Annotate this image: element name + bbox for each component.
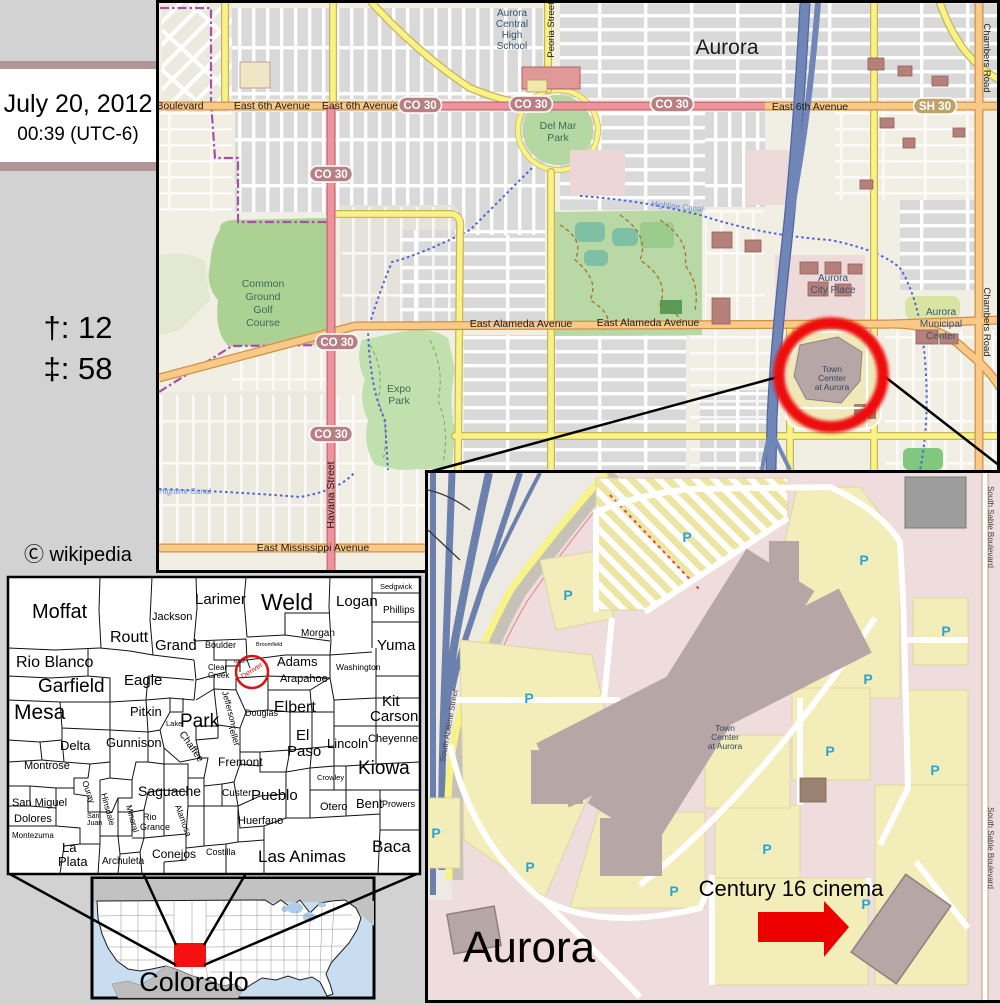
svg-text:CO 30: CO 30 [403,100,436,112]
svg-text:Delta: Delta [60,738,91,753]
svg-text:Montezuma: Montezuma [12,831,54,840]
svg-text:Moffat: Moffat [32,601,88,623]
svg-text:Municipal: Municipal [920,319,962,330]
svg-text:Jackson: Jackson [152,611,192,623]
svg-text:Grand: Grand [155,637,197,654]
svg-text:Costilla: Costilla [206,847,236,857]
svg-text:CO 30: CO 30 [655,99,688,111]
svg-text:CO 30: CO 30 [314,429,347,441]
svg-text:CO 30: CO 30 [320,337,353,349]
svg-text:East 6th Avenue: East 6th Avenue [234,100,310,112]
svg-text:Havana Street: Havana Street [325,461,337,528]
svg-text:P: P [431,825,440,841]
svg-text:P: P [859,552,868,568]
svg-text:El: El [296,727,309,744]
svg-text:at Aurora: at Aurora [815,382,850,392]
svg-text:Dolores: Dolores [14,813,52,825]
svg-text:Chambers Road: Chambers Road [981,287,992,356]
svg-text:Aurora: Aurora [926,307,956,318]
svg-text:Boulevard: Boulevard [159,100,204,112]
svg-text:Huerfano: Huerfano [238,815,283,827]
svg-text:Century 16 cinema: Century 16 cinema [699,876,884,901]
svg-text:P: P [563,587,572,603]
svg-text:Gilpin: Gilpin [234,659,246,664]
svg-text:Custer: Custer [222,788,252,799]
svg-text:P: P [682,529,691,545]
svg-text:East Mississippi Avenue: East Mississippi Avenue [257,542,370,554]
svg-text:East Alameda Avenue: East Alameda Avenue [597,317,700,329]
svg-text:Phillips: Phillips [383,605,415,616]
svg-text:Lincoln: Lincoln [327,736,368,751]
svg-text:Pueblo: Pueblo [251,787,298,804]
svg-text:Larimer: Larimer [195,591,246,608]
svg-text:Aurora: Aurora [497,8,527,19]
svg-text:Conejos: Conejos [152,847,196,861]
svg-text:Washington: Washington [336,662,381,672]
svg-text:P: P [825,743,834,759]
svg-text:Rio Blanco: Rio Blanco [16,654,93,671]
svg-text:Grande: Grande [140,822,170,832]
svg-text:at Aurora: at Aurora [708,741,743,751]
svg-text:Crowley: Crowley [317,773,344,782]
svg-text:Paso: Paso [287,743,321,760]
svg-text:La: La [62,840,77,855]
svg-text:Cheyenne: Cheyenne [368,733,418,745]
svg-text:Morgan: Morgan [301,628,335,639]
svg-text:Expo: Expo [387,383,411,395]
svg-text:Common: Common [242,278,285,290]
svg-text:Broomfield: Broomfield [256,642,282,648]
svg-text:Aurora: Aurora [463,923,596,972]
svg-text:P: P [525,859,534,875]
svg-text:School: School [497,41,528,52]
svg-text:Las Animas: Las Animas [258,847,346,866]
svg-text:Elbert: Elbert [274,699,316,716]
svg-text:P: P [930,762,939,778]
svg-text:Pitkin: Pitkin [130,704,162,719]
svg-text:Plata: Plata [58,854,88,869]
svg-text:City Place: City Place [810,285,855,296]
svg-text:Routt: Routt [110,629,149,646]
svg-text:CO 30: CO 30 [314,169,347,181]
svg-text:CO 30: CO 30 [514,99,547,111]
svg-text:Yuma: Yuma [377,637,416,654]
svg-text:Sedgwick: Sedgwick [380,582,412,591]
svg-text:Course: Course [246,317,280,329]
svg-text:Aurora: Aurora [695,36,758,59]
svg-text:Kiowa: Kiowa [358,758,410,779]
svg-text:East 6th Avenue: East 6th Avenue [772,101,848,113]
svg-text:Baca: Baca [372,837,411,856]
svg-text:Park: Park [388,395,410,407]
svg-text:P: P [863,671,872,687]
svg-text:Weld: Weld [261,589,313,615]
svg-text:Highline Canal: Highline Canal [159,487,211,496]
svg-text:South Sable Boulevard: South Sable Boulevard [986,807,995,889]
svg-text:SH 30: SH 30 [919,101,951,113]
svg-text:High: High [502,30,523,41]
svg-text:Central: Central [496,19,528,30]
svg-text:Carson: Carson [370,708,418,725]
svg-text:East 6th Avenue: East 6th Avenue [322,100,398,112]
svg-text:Juan: Juan [87,820,102,827]
svg-text:Chambers Road: Chambers Road [981,23,992,92]
svg-text:South Sable Boulevard: South Sable Boulevard [986,486,995,568]
svg-text:Ground: Ground [245,291,280,303]
svg-text:Logan: Logan [336,593,378,610]
svg-text:Fremont: Fremont [218,755,263,769]
svg-text:Rio: Rio [143,812,157,822]
svg-text:Eagle: Eagle [124,672,162,689]
svg-text:P: P [762,841,771,857]
svg-text:Peoria Street: Peoria Street [546,3,557,58]
svg-text:Adams: Adams [277,654,318,669]
svg-text:Prowers: Prowers [382,799,416,809]
svg-text:Saguache: Saguache [138,783,201,799]
svg-text:Mesa: Mesa [14,701,66,724]
svg-text:San: San [87,813,100,820]
svg-text:Gunnison: Gunnison [106,735,162,750]
svg-text:Center: Center [926,331,957,342]
svg-text:San Miguel: San Miguel [12,797,67,809]
svg-text:Colorado: Colorado [139,967,249,997]
svg-text:Otero: Otero [320,801,348,813]
svg-text:Park: Park [547,132,569,144]
svg-text:Aurora: Aurora [818,273,848,284]
svg-text:Montrose: Montrose [24,760,70,772]
svg-text:Archuleta: Archuleta [102,856,145,867]
svg-text:Boulder: Boulder [205,640,236,650]
svg-text:P: P [941,623,950,639]
svg-text:East Alameda Avenue: East Alameda Avenue [470,318,573,330]
svg-text:P: P [669,883,678,899]
svg-text:Arapahoe: Arapahoe [280,673,328,685]
svg-text:Garfield: Garfield [38,676,105,697]
svg-text:Lake: Lake [166,719,182,728]
svg-text:Creek: Creek [208,671,230,680]
svg-text:Golf: Golf [253,304,272,316]
svg-text:Del Mar: Del Mar [540,120,577,132]
svg-text:Bent: Bent [356,796,383,811]
svg-text:P: P [524,690,533,706]
